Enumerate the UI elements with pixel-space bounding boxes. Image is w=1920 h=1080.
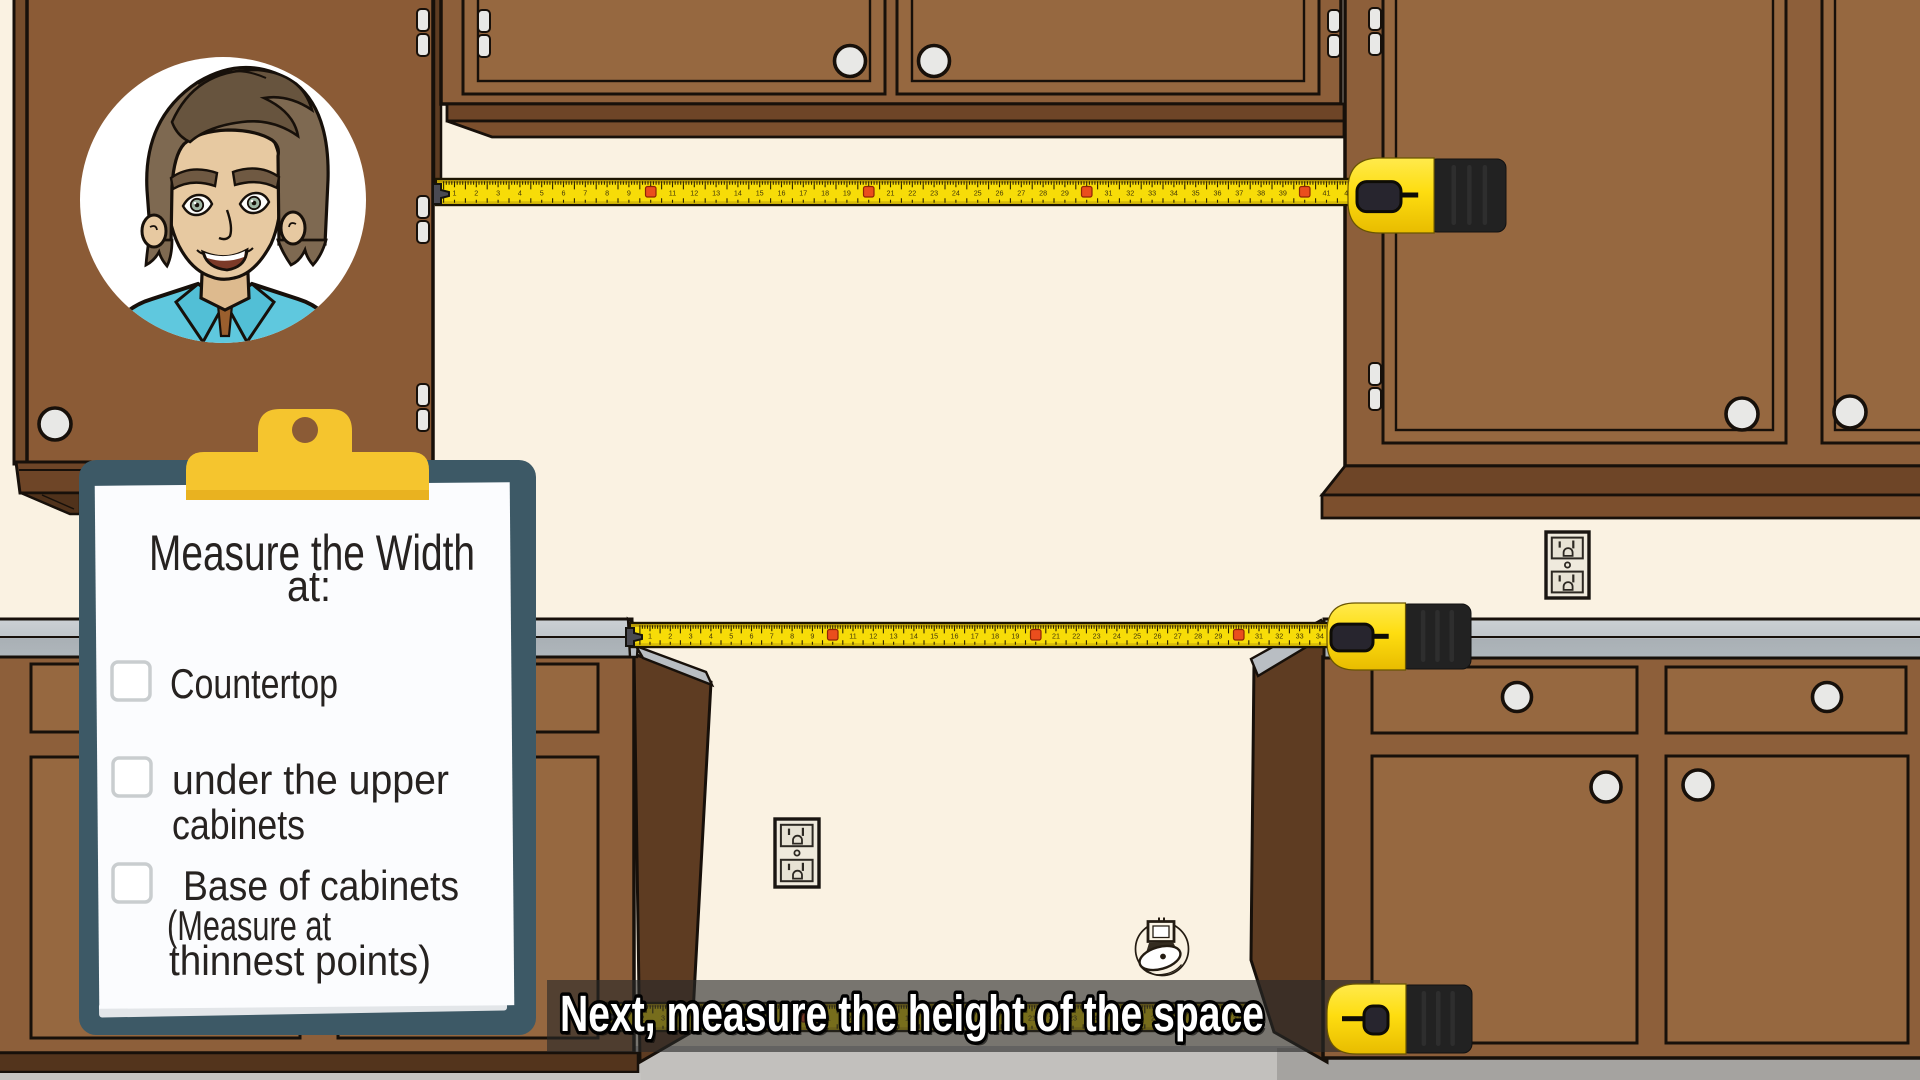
svg-text:5: 5: [729, 631, 733, 640]
svg-text:19: 19: [843, 188, 851, 197]
svg-text:22: 22: [1072, 631, 1080, 640]
svg-text:34: 34: [1170, 188, 1178, 197]
svg-text:26: 26: [996, 188, 1004, 197]
svg-text:at:: at:: [287, 562, 331, 611]
svg-text:Countertop: Countertop: [170, 660, 338, 707]
svg-text:15: 15: [930, 631, 938, 640]
svg-text:24: 24: [952, 188, 960, 197]
svg-text:under the upper: under the upper: [172, 756, 449, 803]
svg-text:25: 25: [1133, 631, 1141, 640]
svg-text:8: 8: [605, 188, 609, 197]
svg-text:18: 18: [991, 631, 999, 640]
svg-text:27: 27: [1017, 188, 1025, 197]
svg-text:24: 24: [1113, 631, 1121, 640]
svg-text:17: 17: [971, 631, 979, 640]
svg-text:17: 17: [799, 188, 807, 197]
svg-text:4: 4: [518, 188, 522, 197]
svg-text:27: 27: [1174, 631, 1182, 640]
svg-text:31: 31: [1255, 631, 1263, 640]
svg-text:36: 36: [1214, 188, 1222, 197]
svg-text:11: 11: [849, 631, 856, 640]
svg-text:11: 11: [669, 188, 676, 197]
svg-text:23: 23: [930, 188, 938, 197]
svg-text:12: 12: [869, 631, 877, 640]
svg-text:6: 6: [750, 631, 754, 640]
svg-text:12: 12: [690, 188, 698, 197]
svg-text:25: 25: [974, 188, 982, 197]
svg-text:29: 29: [1061, 188, 1069, 197]
svg-text:32: 32: [1275, 631, 1283, 640]
svg-text:2: 2: [668, 631, 672, 640]
svg-text:19: 19: [1011, 631, 1019, 640]
svg-text:28: 28: [1039, 188, 1047, 197]
svg-text:39: 39: [1279, 188, 1287, 197]
svg-text:Next, measure the height of th: Next, measure the height of the space: [560, 985, 1264, 1042]
svg-text:41: 41: [1323, 188, 1331, 197]
svg-text:35: 35: [1192, 188, 1200, 197]
svg-text:31: 31: [1105, 188, 1113, 197]
svg-text:13: 13: [712, 188, 720, 197]
svg-text:18: 18: [821, 188, 829, 197]
svg-text:4: 4: [709, 631, 713, 640]
svg-text:28: 28: [1194, 631, 1202, 640]
svg-text:34: 34: [1316, 631, 1324, 640]
svg-text:13: 13: [890, 631, 898, 640]
svg-text:21: 21: [1052, 631, 1060, 640]
svg-text:23: 23: [1093, 631, 1101, 640]
svg-text:33: 33: [1148, 188, 1156, 197]
svg-text:7: 7: [770, 631, 774, 640]
svg-text:thinnest points): thinnest points): [169, 937, 431, 984]
svg-text:26: 26: [1154, 631, 1162, 640]
svg-text:1: 1: [648, 631, 652, 640]
svg-text:6: 6: [562, 188, 566, 197]
svg-text:1: 1: [453, 188, 457, 197]
svg-text:16: 16: [778, 188, 786, 197]
svg-text:14: 14: [910, 631, 918, 640]
svg-text:21: 21: [887, 188, 895, 197]
svg-text:32: 32: [1126, 188, 1134, 197]
svg-text:15: 15: [756, 188, 764, 197]
svg-text:14: 14: [734, 188, 742, 197]
svg-text:37: 37: [1235, 188, 1243, 197]
svg-text:3: 3: [689, 631, 693, 640]
svg-text:38: 38: [1257, 188, 1265, 197]
svg-text:cabinets: cabinets: [172, 801, 305, 848]
svg-text:22: 22: [908, 188, 916, 197]
svg-text:3: 3: [496, 188, 500, 197]
svg-text:33: 33: [1296, 631, 1304, 640]
svg-text:29: 29: [1214, 631, 1222, 640]
svg-text:8: 8: [790, 631, 794, 640]
svg-text:9: 9: [810, 631, 814, 640]
svg-text:2: 2: [474, 188, 478, 197]
svg-text:7: 7: [583, 188, 587, 197]
svg-text:5: 5: [540, 188, 544, 197]
svg-text:16: 16: [951, 631, 959, 640]
svg-text:9: 9: [627, 188, 631, 197]
